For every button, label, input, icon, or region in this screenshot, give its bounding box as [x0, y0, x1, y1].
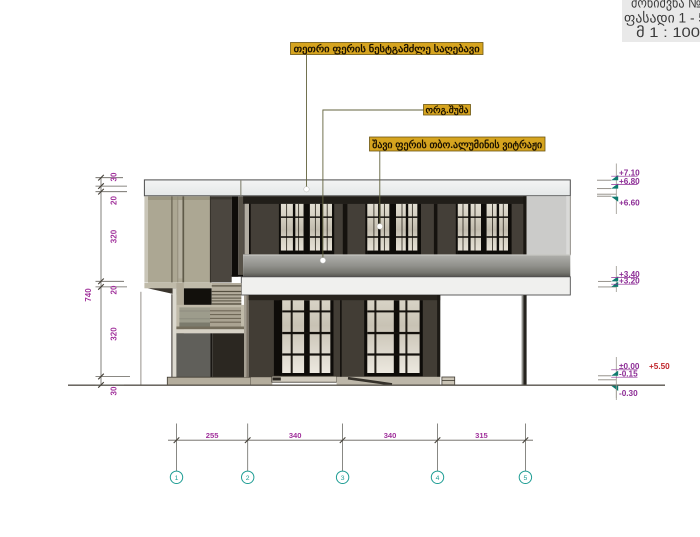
svg-text:+5.50: +5.50 — [649, 362, 670, 371]
svg-text:320: 320 — [110, 229, 119, 243]
svg-text:მ 1 : 100: მ 1 : 100 — [636, 24, 700, 40]
svg-text:1: 1 — [175, 475, 179, 482]
svg-text:20: 20 — [110, 285, 119, 294]
svg-text:+6.60: +6.60 — [619, 199, 640, 208]
svg-text:30: 30 — [110, 386, 119, 395]
svg-text:+3.20: +3.20 — [619, 277, 640, 286]
svg-text:5: 5 — [524, 475, 528, 482]
svg-text:20: 20 — [110, 196, 119, 205]
svg-text:თეთრი ფერის ნესტგამძლე საღებავ: თეთრი ფერის ნესტგამძლე საღებავი — [294, 43, 480, 55]
svg-text:2: 2 — [246, 475, 250, 482]
svg-text:შავი ფერის თბო.ალუმინის ვიტრაჟ: შავი ფერის თბო.ალუმინის ვიტრაჟი — [372, 139, 542, 151]
svg-text:340: 340 — [384, 431, 397, 440]
svg-text:-0.30: -0.30 — [619, 389, 638, 398]
svg-text:3: 3 — [341, 475, 345, 482]
svg-text:315: 315 — [475, 431, 488, 440]
svg-text:320: 320 — [110, 327, 119, 341]
svg-text:30: 30 — [110, 172, 119, 181]
svg-text:4: 4 — [436, 475, 440, 482]
svg-text:ორგ.შუშა: ორგ.შუშა — [426, 105, 469, 116]
svg-text:255: 255 — [206, 431, 219, 440]
svg-text:+6.80: +6.80 — [619, 177, 640, 186]
svg-text:340: 340 — [289, 431, 302, 440]
svg-text:740: 740 — [84, 288, 93, 302]
svg-text:-0.15: -0.15 — [619, 370, 638, 379]
